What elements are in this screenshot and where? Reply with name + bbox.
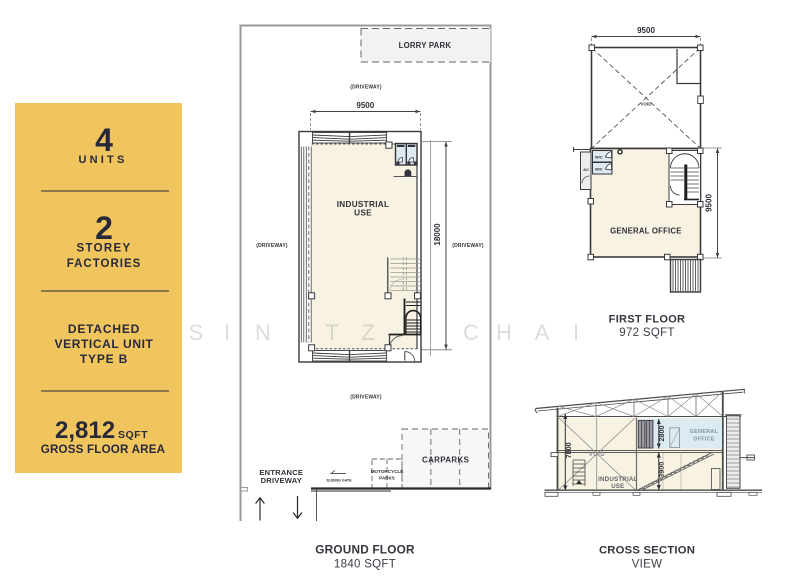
svg-text:GENERAL OFFICE: GENERAL OFFICE — [610, 227, 682, 236]
svg-text:T: T — [325, 320, 338, 345]
svg-text:18000: 18000 — [433, 223, 442, 246]
svg-text:VOID: VOID — [640, 102, 652, 107]
svg-text:GROSS FLOOR AREA: GROSS FLOOR AREA — [41, 443, 166, 456]
svg-text:(DRIVEWAY): (DRIVEWAY) — [256, 243, 288, 249]
svg-text:OFFICE: OFFICE — [693, 437, 715, 443]
svg-text:FIRST FLOOR: FIRST FLOOR — [609, 314, 686, 326]
svg-text:3900: 3900 — [657, 462, 666, 478]
svg-text:2: 2 — [95, 210, 113, 246]
svg-text:4: 4 — [95, 122, 113, 158]
svg-text:A: A — [535, 320, 550, 345]
svg-text:USE: USE — [354, 209, 372, 218]
svg-text:MOTORCYCLE: MOTORCYCLE — [371, 469, 404, 474]
svg-text:(DRIVEWAY): (DRIVEWAY) — [452, 243, 484, 249]
svg-text:9500: 9500 — [705, 194, 714, 212]
svg-text:DRIVEWAY: DRIVEWAY — [261, 476, 302, 485]
svg-text:972 SQFT: 972 SQFT — [619, 327, 674, 339]
svg-text:GROUND FLOOR: GROUND FLOOR — [315, 543, 415, 557]
svg-text:CROSS SECTION: CROSS SECTION — [599, 545, 695, 557]
svg-text:AC: AC — [583, 167, 589, 172]
svg-text:SLIDING GATE: SLIDING GATE — [326, 479, 352, 483]
svg-text:N: N — [255, 320, 271, 345]
svg-text:9500: 9500 — [637, 26, 655, 35]
svg-text:7800: 7800 — [564, 442, 573, 458]
svg-text:DETACHED: DETACHED — [68, 322, 140, 336]
svg-text:PARKS: PARKS — [379, 476, 395, 481]
svg-text:C: C — [463, 320, 479, 345]
svg-text:1840 SQFT: 1840 SQFT — [334, 559, 396, 571]
svg-text:SQFT: SQFT — [118, 429, 148, 441]
svg-text:FACTORIES: FACTORIES — [67, 258, 142, 270]
svg-text:UNITS: UNITS — [79, 154, 128, 166]
svg-text:TYPE B: TYPE B — [80, 352, 128, 366]
svg-text:2,812: 2,812 — [55, 417, 115, 444]
svg-text:(DRIVEWAY): (DRIVEWAY) — [350, 395, 382, 401]
svg-text:Z: Z — [361, 320, 374, 345]
svg-text:I: I — [224, 320, 230, 345]
svg-text:I: I — [573, 320, 579, 345]
svg-text:W/C: W/C — [595, 154, 603, 159]
svg-text:LORRY PARK: LORRY PARK — [399, 41, 452, 50]
svg-text:VIEW: VIEW — [632, 559, 663, 571]
svg-text:S: S — [189, 320, 204, 345]
svg-text:GENERAL: GENERAL — [690, 429, 719, 435]
svg-text:9500: 9500 — [356, 101, 374, 110]
svg-text:W/C: W/C — [595, 166, 603, 171]
svg-text:USE: USE — [611, 483, 624, 490]
svg-text:VOID: VOID — [589, 452, 606, 458]
svg-text:INDUSTRIAL: INDUSTRIAL — [598, 476, 637, 483]
svg-text:VERTICAL UNIT: VERTICAL UNIT — [55, 337, 154, 351]
svg-text:2800: 2800 — [657, 426, 666, 442]
svg-text:CARPARKS: CARPARKS — [422, 455, 470, 464]
svg-text:H: H — [496, 320, 512, 345]
svg-text:(DRIVEWAY): (DRIVEWAY) — [350, 85, 382, 91]
svg-text:STOREY: STOREY — [77, 243, 132, 255]
